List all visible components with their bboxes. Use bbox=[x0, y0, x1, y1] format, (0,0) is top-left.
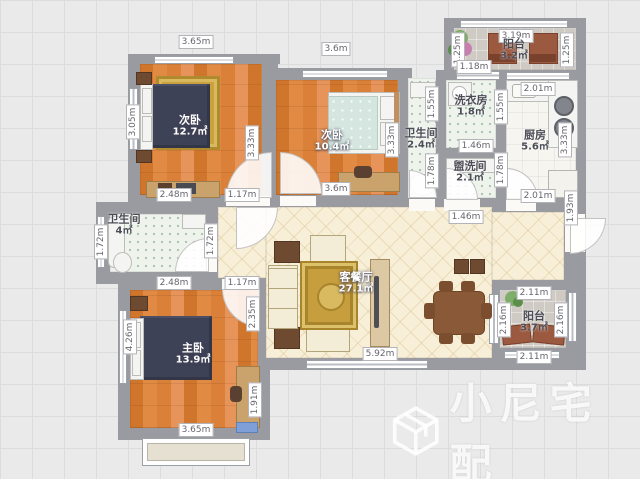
window bbox=[506, 72, 570, 80]
window bbox=[460, 20, 568, 28]
pillow bbox=[142, 88, 152, 114]
plant-icon bbox=[448, 44, 460, 56]
tv-stand bbox=[370, 259, 390, 347]
dimension-label: 3.65m bbox=[179, 35, 214, 49]
balcony-chair-back bbox=[529, 54, 556, 62]
stove-burner bbox=[554, 96, 574, 116]
wall bbox=[446, 148, 498, 158]
door-opening bbox=[506, 199, 536, 211]
wall bbox=[436, 70, 446, 212]
washing-machine-drum bbox=[452, 86, 467, 101]
window bbox=[119, 310, 127, 384]
stove-burner bbox=[554, 118, 574, 138]
desk-chair bbox=[354, 166, 372, 178]
dining-table bbox=[433, 291, 485, 335]
window bbox=[568, 292, 577, 342]
pillow bbox=[132, 322, 141, 348]
pillow bbox=[142, 116, 152, 142]
fridge bbox=[548, 170, 578, 198]
pillow bbox=[132, 350, 141, 376]
sideboard bbox=[470, 259, 485, 274]
window bbox=[97, 216, 105, 268]
window bbox=[154, 56, 234, 64]
watermark-text: 小尼宅配 bbox=[450, 370, 640, 479]
floor-entry bbox=[492, 212, 564, 280]
sofa bbox=[268, 265, 298, 329]
bed-headboard bbox=[394, 92, 399, 152]
dining-chair bbox=[424, 303, 435, 319]
window bbox=[306, 360, 428, 369]
plant-icon bbox=[458, 42, 472, 56]
storage-box bbox=[236, 422, 258, 433]
nightstand bbox=[136, 72, 152, 85]
tv bbox=[374, 276, 379, 328]
watermark: 小尼宅配 bbox=[392, 370, 640, 479]
floorplan-canvas: 3.65m3.6m3.19m1.25m1.25m1.18m2.01m1.55m1… bbox=[0, 0, 640, 479]
nightstand bbox=[136, 150, 152, 163]
end-table bbox=[274, 327, 300, 349]
entrance-door-arc bbox=[570, 218, 606, 254]
wardrobe-items bbox=[176, 183, 196, 194]
plant-icon bbox=[513, 297, 523, 307]
window bbox=[504, 351, 560, 359]
dimension-label: 3.6m bbox=[321, 42, 350, 56]
balcony-bench bbox=[501, 324, 532, 346]
dining-chair bbox=[481, 303, 492, 319]
bed-duvet bbox=[328, 96, 378, 150]
balcony-chair-back bbox=[488, 54, 515, 62]
wash-basin bbox=[465, 160, 479, 171]
dining-chair bbox=[461, 281, 475, 292]
nightstand bbox=[130, 296, 148, 311]
wardrobe-items bbox=[158, 183, 172, 194]
armchair bbox=[310, 235, 346, 264]
bay-window-floor bbox=[147, 443, 245, 461]
end-table bbox=[274, 241, 300, 263]
dining-chair bbox=[439, 281, 453, 292]
wall bbox=[496, 80, 506, 204]
sideboard bbox=[454, 259, 469, 274]
cube-outline-icon bbox=[392, 404, 440, 458]
toilet bbox=[113, 252, 132, 273]
door-opening bbox=[444, 199, 480, 211]
balcony-bench bbox=[532, 323, 566, 345]
bed bbox=[140, 316, 212, 380]
door-opening bbox=[222, 279, 258, 289]
window bbox=[302, 70, 388, 78]
dining-chair bbox=[439, 333, 453, 344]
window bbox=[129, 88, 138, 150]
door-opening bbox=[409, 199, 435, 211]
sink bbox=[182, 214, 206, 229]
rug-medallion bbox=[317, 283, 345, 311]
kitchen-sink bbox=[512, 84, 536, 98]
sink bbox=[410, 82, 436, 98]
door-opening bbox=[280, 196, 316, 206]
chair bbox=[230, 386, 242, 402]
sliding-door-balcony-top bbox=[456, 71, 500, 80]
dining-chair bbox=[461, 333, 475, 344]
sliding-door-balcony-right bbox=[489, 294, 499, 344]
